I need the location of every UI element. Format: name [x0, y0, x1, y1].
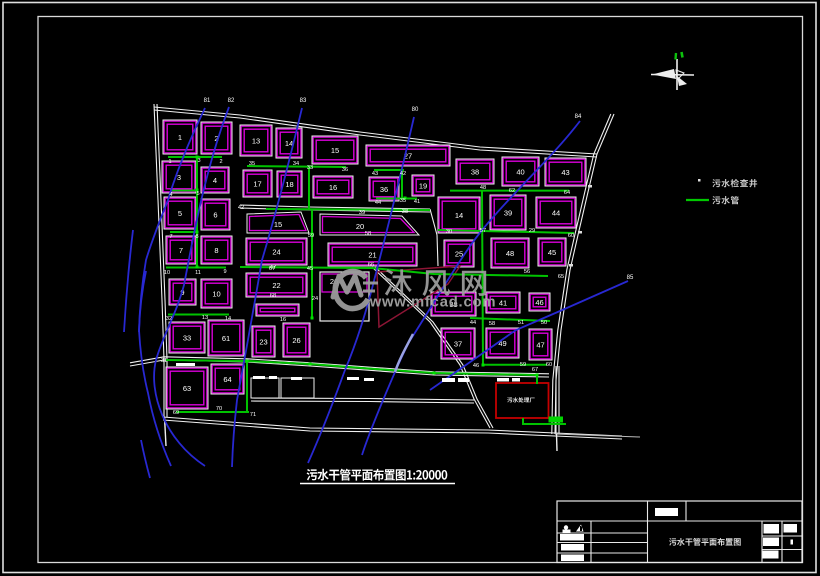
- svg-text:67: 67: [532, 367, 538, 373]
- svg-text:22: 22: [272, 281, 280, 290]
- svg-text:20: 20: [356, 222, 364, 231]
- svg-text:13: 13: [252, 137, 260, 146]
- svg-text:www.mfcad.com: www.mfcad.com: [369, 295, 497, 311]
- svg-text:24: 24: [312, 296, 318, 302]
- svg-text:8: 8: [214, 246, 218, 255]
- svg-text:66: 66: [368, 262, 374, 268]
- svg-text:48: 48: [480, 185, 486, 191]
- svg-text:3: 3: [177, 173, 181, 182]
- svg-text:34: 34: [293, 161, 299, 167]
- svg-text:69: 69: [173, 410, 179, 416]
- svg-text:7: 7: [179, 246, 183, 255]
- svg-text:9: 9: [223, 269, 226, 275]
- svg-text:58: 58: [489, 321, 495, 327]
- svg-text:1: 1: [178, 133, 182, 142]
- svg-text:65: 65: [558, 274, 564, 280]
- svg-text:21: 21: [368, 251, 376, 260]
- svg-text:42: 42: [400, 171, 406, 177]
- svg-text:8: 8: [195, 234, 198, 240]
- svg-text:5: 5: [196, 191, 199, 197]
- svg-text:60: 60: [546, 362, 552, 368]
- svg-text:15: 15: [274, 220, 282, 229]
- svg-text:2: 2: [219, 159, 222, 165]
- svg-text:4: 4: [169, 192, 172, 198]
- svg-text:68: 68: [270, 293, 276, 299]
- svg-text:61: 61: [222, 334, 230, 343]
- svg-text:31: 31: [161, 358, 167, 364]
- svg-text:18: 18: [285, 180, 293, 189]
- svg-text:24: 24: [272, 248, 280, 257]
- svg-text:33: 33: [183, 334, 191, 343]
- svg-text:30: 30: [446, 229, 452, 235]
- svg-text:71: 71: [250, 412, 256, 418]
- svg-text:36: 36: [342, 167, 348, 173]
- svg-text:44: 44: [375, 200, 381, 206]
- svg-text:48: 48: [506, 249, 514, 258]
- svg-text:41: 41: [414, 199, 420, 205]
- svg-text:6: 6: [213, 211, 217, 220]
- svg-text:59: 59: [308, 233, 314, 239]
- svg-text:35: 35: [249, 161, 255, 167]
- svg-text:43: 43: [561, 168, 569, 177]
- svg-text:36: 36: [380, 185, 388, 194]
- svg-text:83: 83: [300, 98, 307, 104]
- svg-text:44: 44: [470, 320, 476, 326]
- svg-text:1: 1: [168, 159, 171, 165]
- svg-text:26: 26: [292, 336, 300, 345]
- svg-text:46: 46: [535, 298, 543, 307]
- svg-text:17: 17: [253, 180, 261, 189]
- svg-text:14: 14: [225, 316, 231, 322]
- svg-text:7: 7: [169, 234, 172, 240]
- svg-text:64: 64: [564, 190, 570, 196]
- svg-text:50: 50: [541, 320, 547, 326]
- svg-text:29: 29: [529, 228, 535, 234]
- svg-text:13: 13: [202, 315, 208, 321]
- svg-text:85: 85: [627, 275, 634, 281]
- svg-text:62: 62: [509, 188, 515, 194]
- svg-text:47: 47: [536, 341, 544, 350]
- svg-text:80: 80: [412, 107, 419, 113]
- svg-text:15: 15: [331, 146, 339, 155]
- svg-text:37: 37: [454, 340, 462, 349]
- svg-text:45: 45: [548, 248, 556, 257]
- svg-text:51: 51: [518, 320, 524, 326]
- svg-text:11: 11: [195, 270, 201, 276]
- svg-text:41: 41: [499, 299, 507, 308]
- svg-text:38: 38: [471, 168, 479, 177]
- svg-text:16: 16: [329, 183, 337, 192]
- svg-text:32: 32: [166, 316, 172, 322]
- svg-text:70: 70: [216, 406, 222, 412]
- svg-text:19: 19: [419, 182, 427, 191]
- svg-text:58: 58: [365, 231, 371, 237]
- svg-text:38: 38: [402, 209, 408, 215]
- svg-text:3: 3: [197, 158, 200, 164]
- svg-text:84: 84: [575, 114, 582, 120]
- svg-text:33: 33: [307, 165, 313, 171]
- svg-text:23: 23: [259, 338, 267, 347]
- svg-text:64: 64: [223, 375, 231, 384]
- svg-text:56: 56: [524, 269, 530, 275]
- svg-text:4: 4: [213, 176, 217, 185]
- svg-text:42: 42: [238, 205, 244, 211]
- svg-text:45: 45: [307, 266, 313, 272]
- svg-text:81: 81: [204, 98, 211, 104]
- svg-text:60: 60: [568, 233, 574, 239]
- svg-text:44: 44: [552, 209, 560, 218]
- svg-text:40: 40: [516, 168, 524, 177]
- svg-text:43: 43: [372, 171, 378, 177]
- svg-text:14: 14: [455, 211, 463, 220]
- svg-text:35: 35: [400, 198, 406, 204]
- svg-text:63: 63: [183, 384, 191, 393]
- svg-text:39: 39: [504, 209, 512, 218]
- svg-text:5: 5: [178, 209, 182, 218]
- svg-text:10: 10: [164, 270, 170, 276]
- svg-text:59: 59: [520, 362, 526, 368]
- svg-text:82: 82: [228, 98, 235, 104]
- svg-text:16: 16: [280, 317, 286, 323]
- svg-text:57: 57: [480, 228, 486, 234]
- svg-text:10: 10: [212, 290, 220, 299]
- svg-text:39: 39: [359, 210, 365, 216]
- svg-text:46: 46: [473, 363, 479, 369]
- svg-text:67: 67: [269, 266, 275, 272]
